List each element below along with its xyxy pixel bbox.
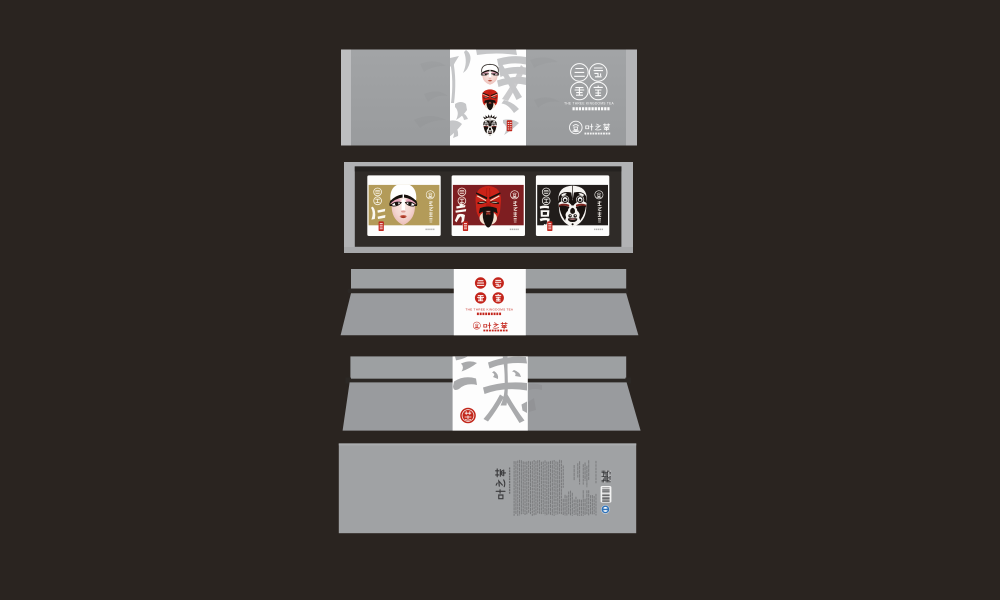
svg-text:THE THREE KINGDOMS TEA: THE THREE KINGDOMS TEA — [564, 102, 614, 106]
svg-text:THE THREE KINGDOMS TEA: THE THREE KINGDOMS TEA — [466, 308, 514, 312]
